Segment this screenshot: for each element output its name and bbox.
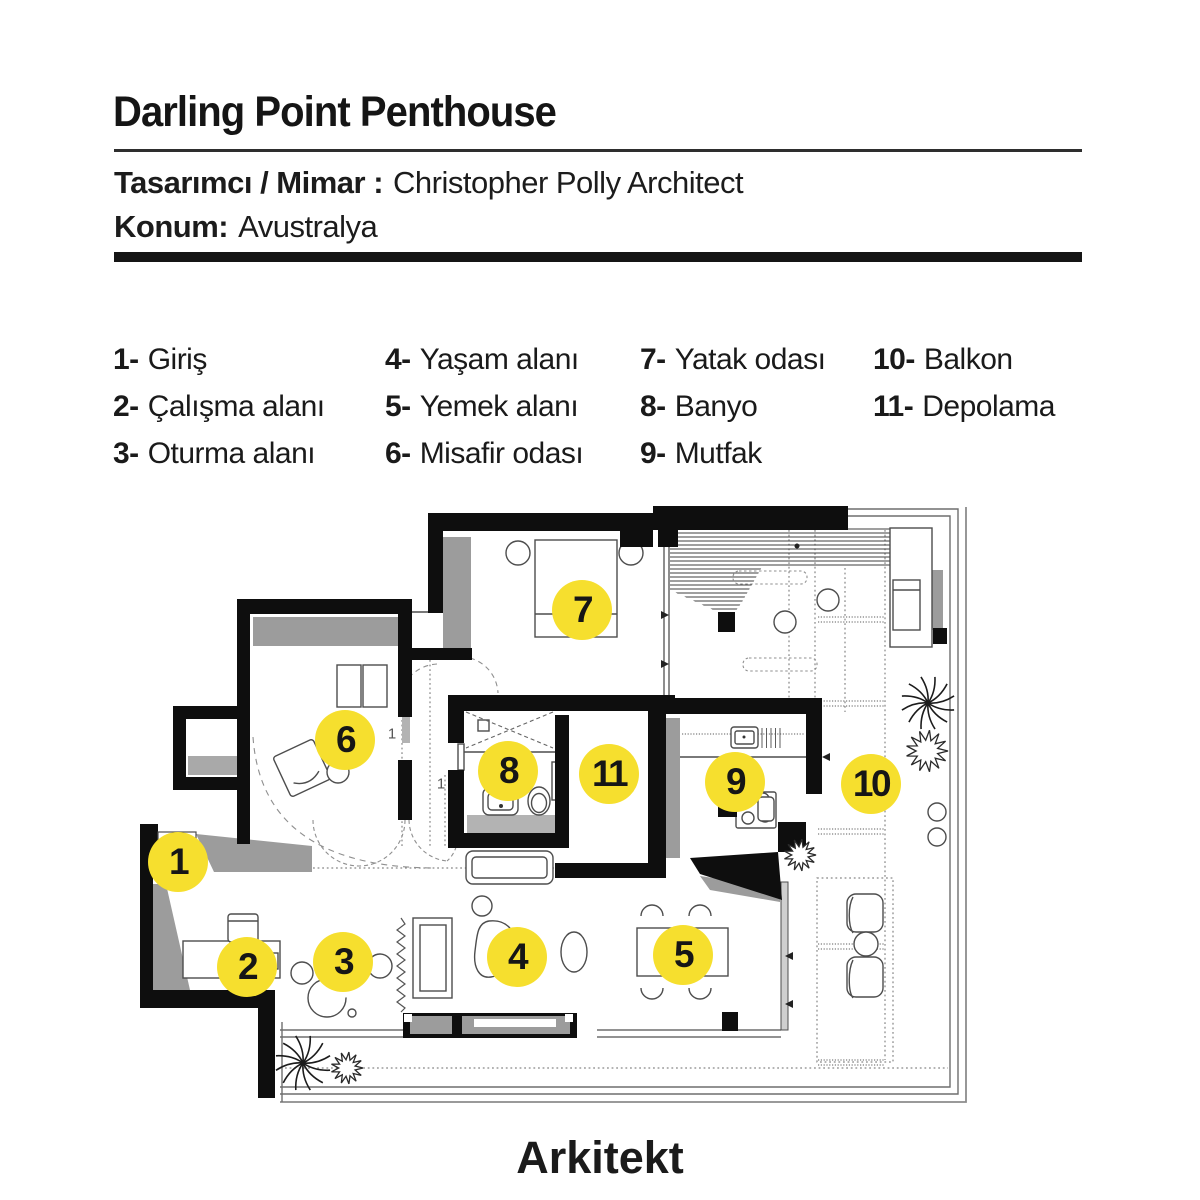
legend-item: 1-Giriş	[113, 336, 325, 383]
designer-label: Tasarımcı / Mimar :	[114, 165, 383, 200]
plan-marker-11: 11	[579, 744, 639, 804]
legend-item: 11-Depolama	[873, 383, 1055, 430]
legend-item: 2-Çalışma alanı	[113, 383, 325, 430]
plan-marker-10: 10	[841, 754, 901, 814]
plan-marker-7: 7	[552, 580, 612, 640]
door-arrow-icon	[822, 753, 830, 761]
plan-marker-3: 3	[313, 932, 373, 992]
plan-marker-5: 5	[653, 925, 713, 985]
legend-item: 9-Mutfak	[640, 430, 825, 477]
door-arrow-icon	[661, 660, 669, 668]
door-arrow-icon	[661, 611, 669, 619]
plan-marker-1: 1	[148, 832, 208, 892]
plant-icons	[276, 677, 954, 1090]
divider-thick	[114, 252, 1082, 262]
page-title: Darling Point Penthouse	[113, 88, 556, 137]
door-label-0: 1	[388, 726, 396, 743]
location-value: Avustralya	[238, 209, 377, 244]
plan-marker-4: 4	[487, 927, 547, 987]
designer-value: Christopher Polly Architect	[393, 165, 743, 200]
pergola-hatch	[670, 528, 890, 612]
location-line: Konum:Avustralya	[114, 209, 377, 245]
legend-column-2: 4-Yaşam alanı 5-Yemek alanı 6-Misafir od…	[385, 336, 583, 477]
plan-marker-6: 6	[315, 710, 375, 770]
footer-logo: Arkitekt	[0, 1132, 1200, 1184]
legend-column-1: 1-Giriş 2-Çalışma alanı 3-Oturma alanı	[113, 336, 325, 477]
legend-column-3: 7-Yatak odası 8-Banyo 9-Mutfak	[640, 336, 825, 477]
location-label: Konum:	[114, 209, 228, 244]
legend-item: 4-Yaşam alanı	[385, 336, 583, 383]
plan-marker-9: 9	[705, 752, 765, 812]
poster-page: Darling Point Penthouse Tasarımcı / Mima…	[0, 0, 1200, 1200]
legend-column-4: 10-Balkon 11-Depolama	[873, 336, 1055, 430]
legend-item: 10-Balkon	[873, 336, 1055, 383]
door-label-1: 1	[437, 776, 445, 793]
legend-item: 5-Yemek alanı	[385, 383, 583, 430]
legend-item: 3-Oturma alanı	[113, 430, 325, 477]
legend-item: 6-Misafir odası	[385, 430, 583, 477]
plan-marker-8: 8	[478, 741, 538, 801]
plan-marker-2: 2	[217, 937, 277, 997]
legend-item: 8-Banyo	[640, 383, 825, 430]
designer-line: Tasarımcı / Mimar :Christopher Polly Arc…	[114, 165, 743, 201]
divider-thin	[114, 149, 1082, 152]
shower-head-icon	[478, 720, 489, 731]
legend-item: 7-Yatak odası	[640, 336, 825, 383]
